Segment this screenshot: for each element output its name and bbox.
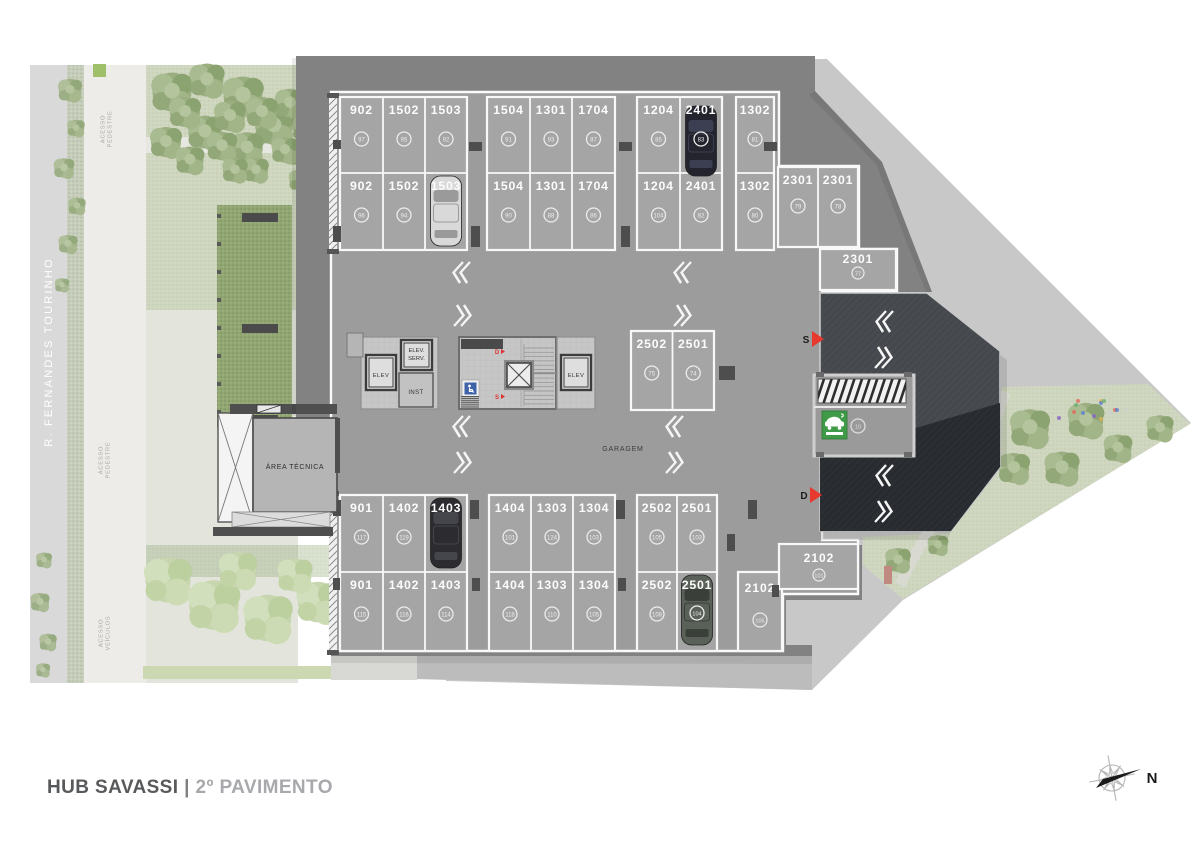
svg-text:81: 81 (752, 137, 759, 143)
svg-text:902: 902 (350, 103, 373, 117)
svg-text:901: 901 (350, 578, 373, 592)
svg-text:104: 104 (692, 611, 701, 617)
svg-text:1302: 1302 (740, 179, 771, 193)
svg-text:110: 110 (547, 612, 557, 618)
svg-text:2502: 2502 (642, 578, 673, 592)
svg-text:1403: 1403 (431, 501, 462, 515)
svg-text:2401: 2401 (686, 103, 717, 117)
svg-text:902: 902 (350, 179, 373, 193)
svg-text:86: 86 (590, 213, 597, 219)
svg-text:D: D (800, 491, 807, 502)
svg-text:ACESSO: ACESSO (99, 446, 105, 474)
svg-text:2401: 2401 (686, 179, 717, 193)
svg-text:115: 115 (357, 612, 367, 618)
svg-text:ACESSO: ACESSO (99, 619, 105, 647)
svg-text:D: D (495, 350, 500, 356)
svg-text:79: 79 (795, 204, 802, 210)
svg-text:S: S (803, 335, 810, 346)
svg-text:PEDESTRE: PEDESTRE (106, 442, 112, 479)
svg-text:104: 104 (653, 213, 664, 219)
svg-text:ELEV.: ELEV. (409, 348, 425, 354)
svg-text:INST: INST (408, 390, 423, 396)
svg-text:1303: 1303 (537, 578, 568, 592)
svg-text:124: 124 (547, 535, 558, 541)
svg-text:1301: 1301 (536, 179, 567, 193)
svg-text:1504: 1504 (493, 179, 524, 193)
svg-text:87: 87 (590, 137, 597, 143)
svg-text:2501: 2501 (682, 501, 713, 515)
svg-text:118: 118 (505, 612, 515, 618)
svg-text:103: 103 (692, 535, 703, 541)
svg-text:1204: 1204 (643, 103, 674, 117)
svg-text:85: 85 (655, 137, 662, 143)
svg-text:N: N (1147, 770, 1158, 787)
svg-text:2102: 2102 (745, 581, 776, 595)
svg-text:10: 10 (855, 424, 861, 430)
svg-text:1503: 1503 (431, 179, 462, 193)
svg-text:101: 101 (505, 535, 516, 541)
svg-text:90: 90 (505, 213, 512, 219)
svg-text:82: 82 (698, 213, 705, 219)
svg-text:94: 94 (401, 213, 408, 219)
svg-text:ELEV: ELEV (373, 373, 389, 379)
svg-text:75: 75 (648, 371, 655, 377)
svg-text:83: 83 (698, 137, 705, 143)
svg-text:108: 108 (652, 612, 663, 618)
svg-text:1402: 1402 (389, 501, 420, 515)
svg-text:101: 101 (814, 573, 823, 579)
svg-text:1704: 1704 (578, 179, 609, 193)
svg-text:1704: 1704 (578, 103, 609, 117)
svg-text:119: 119 (399, 535, 409, 541)
svg-text:78: 78 (835, 204, 842, 210)
svg-text:901: 901 (350, 501, 373, 515)
svg-text:93: 93 (548, 137, 555, 143)
svg-text:GARAGEM: GARAGEM (602, 446, 643, 453)
svg-text:2301: 2301 (823, 173, 854, 187)
svg-text:1204: 1204 (643, 179, 674, 193)
svg-text:ELEV: ELEV (568, 373, 584, 379)
svg-text:105: 105 (652, 535, 663, 541)
svg-text:116: 116 (399, 612, 409, 618)
svg-text:74: 74 (690, 371, 697, 377)
svg-text:77: 77 (855, 271, 861, 277)
svg-text:117: 117 (357, 535, 367, 541)
svg-text:1303: 1303 (537, 501, 568, 515)
svg-text:103: 103 (589, 535, 600, 541)
svg-text:1403: 1403 (431, 578, 462, 592)
svg-text:VEÍCULOS: VEÍCULOS (105, 616, 112, 651)
svg-text:1504: 1504 (493, 103, 524, 117)
svg-text:R. FERNANDES TOURINHO: R. FERNANDES TOURINHO (43, 257, 55, 446)
svg-text:S: S (495, 395, 499, 401)
svg-text:2501: 2501 (682, 578, 713, 592)
svg-text:1404: 1404 (495, 501, 526, 515)
svg-text:114: 114 (441, 612, 451, 618)
svg-text:ÁREA TÉCNICA: ÁREA TÉCNICA (266, 462, 324, 471)
svg-text:2301: 2301 (783, 173, 814, 187)
svg-text:92: 92 (443, 137, 450, 143)
svg-text:1404: 1404 (495, 578, 526, 592)
svg-text:105: 105 (589, 612, 600, 618)
svg-text:1502: 1502 (389, 179, 420, 193)
svg-text:1301: 1301 (536, 103, 567, 117)
svg-text:SERV.: SERV. (408, 356, 425, 362)
svg-text:1402: 1402 (389, 578, 420, 592)
svg-text:2301: 2301 (843, 252, 874, 266)
svg-text:80: 80 (752, 213, 759, 219)
svg-text:1304: 1304 (579, 501, 610, 515)
svg-text:1503: 1503 (431, 103, 462, 117)
svg-text:ACESSO: ACESSO (101, 115, 107, 143)
svg-text:2502: 2502 (636, 337, 667, 351)
svg-text:88: 88 (548, 213, 555, 219)
svg-text:96: 96 (358, 213, 365, 219)
svg-text:1302: 1302 (740, 103, 771, 117)
svg-text:2502: 2502 (642, 501, 673, 515)
svg-text:95: 95 (401, 137, 408, 143)
svg-text:97: 97 (358, 137, 365, 143)
svg-text:1502: 1502 (389, 103, 420, 117)
svg-text:2501: 2501 (678, 337, 709, 351)
svg-text:HUB SAVASSI | 2º PAVIMENTO: HUB SAVASSI | 2º PAVIMENTO (47, 777, 333, 798)
svg-text:PEDESTRE: PEDESTRE (108, 111, 114, 148)
svg-text:2102: 2102 (804, 551, 835, 565)
svg-text:1304: 1304 (579, 578, 610, 592)
svg-text:91: 91 (505, 137, 512, 143)
svg-text:105: 105 (755, 618, 764, 624)
